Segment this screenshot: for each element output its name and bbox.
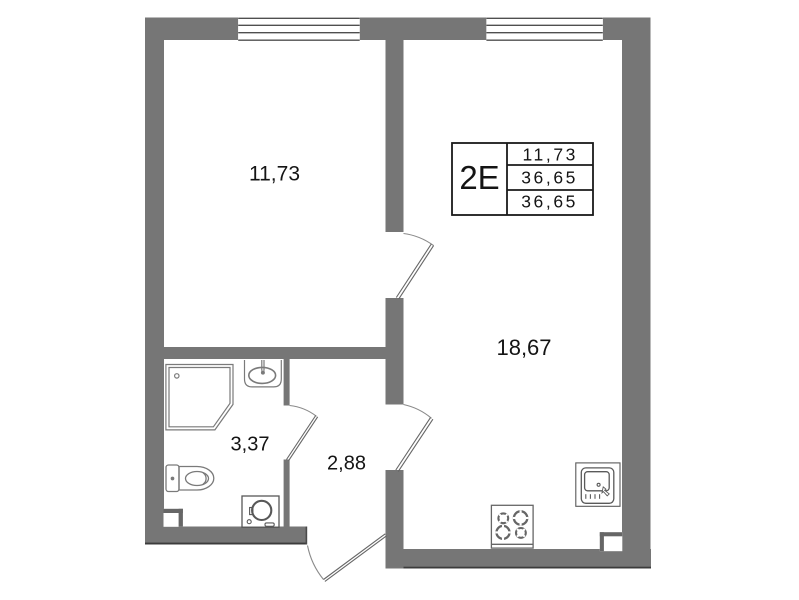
- svg-text:3,37: 3,37: [231, 434, 270, 456]
- svg-text:2,88: 2,88: [327, 453, 366, 475]
- svg-text:11,73: 11,73: [249, 163, 300, 186]
- svg-text:36,65: 36,65: [521, 192, 578, 212]
- svg-text:18,67: 18,67: [496, 335, 551, 360]
- svg-text:11,73: 11,73: [523, 145, 579, 165]
- svg-text:2Е: 2Е: [459, 159, 499, 196]
- svg-text:36,65: 36,65: [521, 168, 578, 188]
